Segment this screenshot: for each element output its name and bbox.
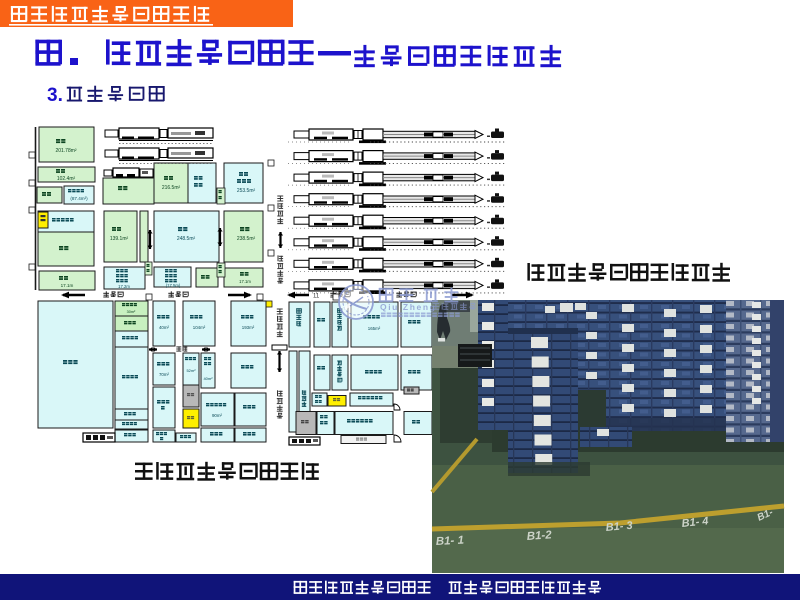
svg-text:139.1m²: 139.1m² <box>110 236 129 242</box>
svg-text:201.78m²: 201.78m² <box>55 148 76 154</box>
svg-text:30m²: 30m² <box>127 310 136 314</box>
svg-text:165m²: 165m² <box>368 326 381 331</box>
svg-text:17.1m: 17.1m <box>61 283 74 288</box>
svg-text:3.: 3. <box>47 85 63 106</box>
svg-text:104m²: 104m² <box>193 325 206 330</box>
svg-text:52m²: 52m² <box>186 368 196 373</box>
svg-text:17.1m: 17.1m <box>239 279 251 284</box>
svg-text:253.5m²: 253.5m² <box>237 188 256 194</box>
svg-text:102.4m²: 102.4m² <box>57 176 76 182</box>
svg-text:193m²: 193m² <box>242 325 255 330</box>
svg-text:248.5m²: 248.5m² <box>177 236 196 242</box>
svg-text:90m²: 90m² <box>212 413 223 418</box>
svg-text:238.5m²: 238.5m² <box>237 236 256 242</box>
svg-text:11: 11 <box>313 294 320 300</box>
svg-text:40m²: 40m² <box>159 325 170 330</box>
svg-text:(87.4m²): (87.4m²) <box>70 196 88 201</box>
svg-text:B1- 3: B1- 3 <box>605 520 633 534</box>
svg-text:17.2m: 17.2m <box>118 284 130 289</box>
svg-text:B1-2: B1-2 <box>526 529 552 543</box>
svg-text:B1- 1: B1- 1 <box>436 535 465 548</box>
svg-text:70m²: 70m² <box>159 372 170 377</box>
svg-text:Qiu Zheng: Qiu Zheng <box>380 302 436 312</box>
svg-text:(17.5m): (17.5m) <box>166 283 181 288</box>
svg-text:216.5m²: 216.5m² <box>162 185 181 191</box>
svg-text:40m²: 40m² <box>203 376 213 381</box>
